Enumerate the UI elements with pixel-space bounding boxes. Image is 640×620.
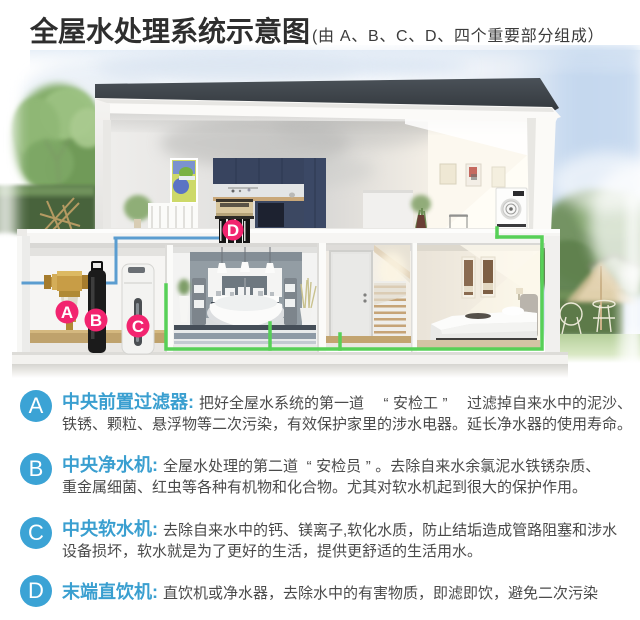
svg-text:B: B — [90, 311, 102, 330]
svg-text:D: D — [227, 221, 239, 240]
svg-text:C: C — [132, 317, 144, 336]
svg-text:A: A — [61, 303, 73, 322]
